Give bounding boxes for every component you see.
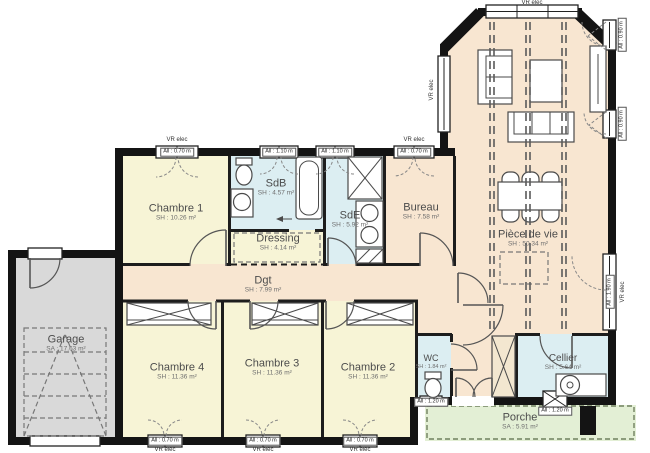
room-label-cellier: CellierSH : 5.64 m²	[545, 353, 581, 371]
window-label-bottom-1: All : 0.70 m	[148, 437, 182, 446]
toilet-tank	[236, 158, 252, 165]
garage-door	[30, 436, 100, 446]
room-label-chambre1: Chambre 1SH : 10.26 m²	[149, 202, 203, 221]
window-label-right-1: All : 0.90 m	[618, 18, 627, 52]
window-label-right-3: All : 1.90 m	[606, 275, 615, 309]
room-label-chambre4: Chambre 4SH : 11.36 m²	[150, 361, 204, 380]
room-label-sde: SdESH : 5.92 m²	[332, 209, 368, 228]
vr-elec-label: VR elec	[403, 137, 424, 143]
washer-column	[356, 249, 383, 263]
sink-basin	[234, 194, 251, 211]
window-label-bottom-2: All : 0.70 m	[246, 437, 280, 446]
floor-plan: Chambre 1SH : 10.26 m² SdBSH : 4.57 m² D…	[0, 0, 650, 453]
vr-elec-label: VR elec	[349, 447, 370, 453]
window-label-top-3: All : 1.10 m	[318, 148, 352, 157]
fixtures-cellier	[556, 374, 606, 396]
window-label-top-2: All : 1.10 m	[262, 148, 296, 157]
sofa-2	[508, 112, 574, 142]
vr-elec-label: VR elec	[154, 447, 175, 453]
window-label-right-2: All : 0.90 m	[618, 107, 627, 141]
window-label-entry-side: All : 1.20 m	[414, 398, 448, 407]
room-label-sdb: SdBSH : 4.57 m²	[258, 177, 294, 196]
vr-elec-label: VR elec	[620, 281, 626, 302]
room-label-chambre3: Chambre 3SH : 11.36 m²	[245, 357, 299, 376]
entry-door-opening	[452, 396, 494, 406]
coffee-table	[530, 60, 562, 102]
room-label-wc: WCSH : 1.84 m²	[416, 354, 447, 370]
toilet-bowl	[236, 165, 252, 185]
floor-plan-drawing	[0, 0, 650, 453]
window-label-bottom-3: All : 0.70 m	[343, 437, 377, 446]
vr-elec-label: VR elec	[429, 79, 435, 100]
room-label-garage: GarageSA : 17.63 m²	[46, 333, 85, 352]
fixtures-wc	[425, 372, 441, 398]
room-label-dgt: DgtSH : 7.99 m²	[245, 274, 281, 293]
vr-elec-label: VR elec	[252, 447, 273, 453]
vr-elec-label: VR elec	[166, 137, 187, 143]
room-label-bureau: BureauSH : 7.58 m²	[403, 201, 439, 220]
room-label-dressing: DressingSH : 4.14 m²	[256, 232, 299, 251]
washing-machine	[561, 376, 580, 395]
garage-side-door	[28, 248, 62, 259]
porch-post	[580, 406, 596, 435]
window-label-top-4: All : 0.70 m	[397, 148, 431, 157]
room-label-chambre2: Chambre 2SH : 11.36 m²	[341, 361, 395, 380]
room-label-porche: PorcheSA : 5.91 m²	[502, 411, 538, 430]
window-label-porch: All : 1.20 m	[538, 407, 572, 416]
window-label-top-1: All : 0.70 m	[160, 148, 194, 157]
room-label-piece-de-vie: Pièce de vieSH : 50.34 m²	[498, 228, 558, 247]
vr-elec-label: VR elec	[521, 0, 542, 6]
